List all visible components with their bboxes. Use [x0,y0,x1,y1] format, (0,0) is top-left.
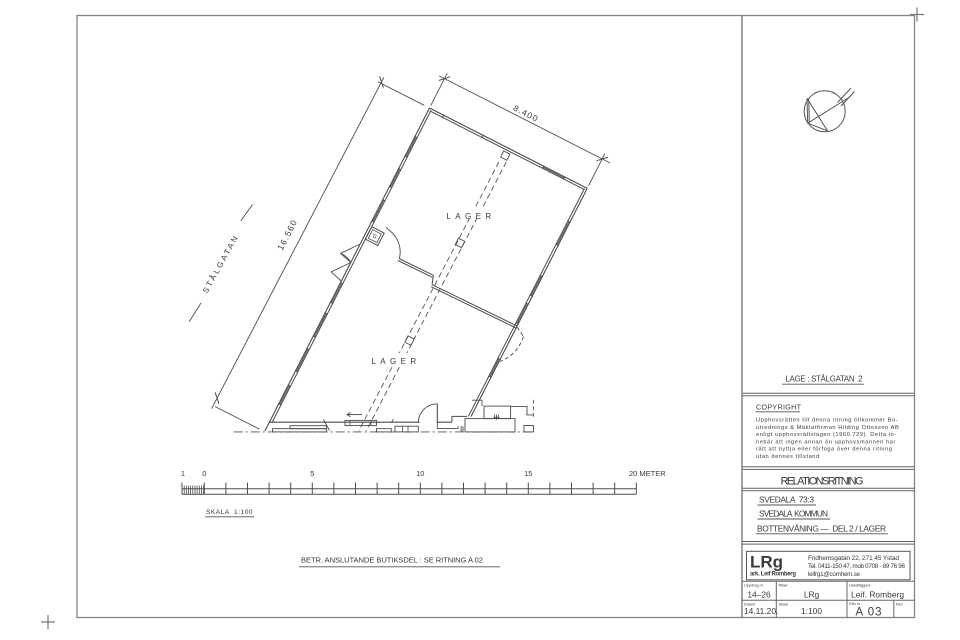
svg-text:0: 0 [202,469,206,478]
svg-text:10: 10 [416,469,424,478]
svg-text:rätt att nyttja eller förfoga: rätt att nyttja eller förfoga över denna… [756,447,892,453]
svg-text:5: 5 [310,469,314,478]
svg-text:Uppdrag nr: Uppdrag nr [744,584,764,588]
svg-text:20 METER: 20 METER [629,469,666,478]
svg-text:SVEDALA KOMMUN: SVEDALA KOMMUN [759,509,828,519]
svg-text:14–26: 14–26 [747,590,771,600]
svg-text:A 03: A 03 [855,607,882,619]
svg-text:BETR. ANSLUTANDE BUTIKSDEL : S: BETR. ANSLUTANDE BUTIKSDEL : SE RITNING … [301,556,483,565]
svg-text:Handläggare: Handläggare [849,584,871,588]
svg-text:nebär att ingen annan än uppho: nebär att ingen annan än upphovsmannen h… [756,439,896,445]
svg-text:BOTTENVÅNING — DEL 2 / LAGER: BOTTENVÅNING — DEL 2 / LAGER [757,523,886,533]
svg-text:Leif. Romberg: Leif. Romberg [851,590,904,600]
svg-text:COPYRIGHT: COPYRIGHT [756,403,802,412]
svg-text:1: 1 [181,469,185,478]
svg-text:Fridhemsgatan 22, 271 45 Ysta: Fridhemsgatan 22, 271 45 Ystad [808,555,899,562]
svg-text:Upphovsrätten till denna ritni: Upphovsrätten till denna ritning tillkom… [756,418,898,424]
svg-text:Tel. 0411-150 47, mob 0708 - 8: Tel. 0411-150 47, mob 0708 - 89 76 96 [808,563,905,570]
svg-text:RELATIONSRITNING: RELATIONSRITNING [781,476,864,488]
svg-text:14.11.20.: 14.11.20. [744,606,778,616]
svg-text:SKALA 1:100: SKALA 1:100 [206,509,253,516]
svg-text:LAGER: LAGER [371,357,420,366]
svg-text:Rev: Rev [896,603,903,607]
svg-text:LAGE : STÅLGATAN 2: LAGE : STÅLGATAN 2 [786,375,863,384]
svg-text:Skala: Skala [779,603,789,607]
svg-text:15: 15 [524,469,532,478]
svg-text:1:100: 1:100 [801,606,822,616]
svg-text:LRg: LRg [804,590,820,600]
svg-text:utan dennes tillstand: utan dennes tillstand [756,454,820,460]
svg-text:enligt upphovsrättslagen (1960: enligt upphovsrättslagen (1960.729). Det… [756,432,897,438]
svg-text:ark. Leif Romberg: ark. Leif Romberg [750,572,796,578]
svg-text:utrednings & Mäklarfirman Hild: utrednings & Mäklarfirman Hilding Ottoss… [756,425,899,431]
svg-text:leifrg1@comhem.se: leifrg1@comhem.se [808,571,860,578]
svg-text:LRg: LRg [750,553,783,572]
svg-text:Ritad: Ritad [779,584,788,588]
svg-text:Ritn nr: Ritn nr [849,602,861,606]
svg-text:LAGER: LAGER [446,212,495,221]
svg-text:SVEDALA 73:3: SVEDALA 73:3 [759,495,814,505]
